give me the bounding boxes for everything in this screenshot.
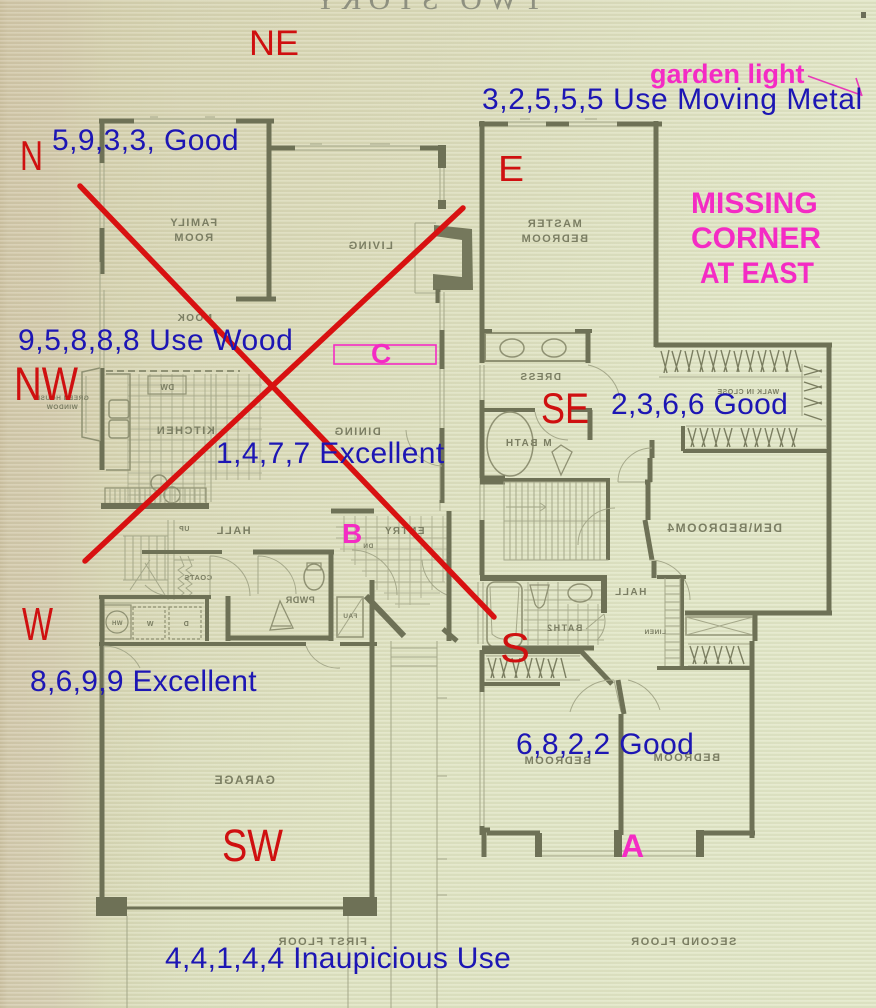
svg-text:UP: UP	[179, 526, 190, 533]
svg-text:WH: WH	[112, 621, 123, 627]
svg-text:FAU: FAU	[343, 613, 358, 620]
svg-text:E: E	[498, 148, 524, 189]
svg-text:BEDROOM: BEDROOM	[520, 233, 588, 245]
svg-text:S: S	[500, 624, 530, 671]
svg-text:NE: NE	[249, 24, 299, 63]
svg-text:CORNER: CORNER	[691, 222, 821, 255]
svg-text:DN: DN	[363, 543, 373, 550]
svg-text:6,8,2,2 Good: 6,8,2,2 Good	[516, 728, 694, 761]
svg-text:PWDR: PWDR	[285, 595, 315, 605]
svg-text:HALL: HALL	[614, 587, 647, 598]
svg-text:2,3,6,6 Good: 2,3,6,6 Good	[611, 388, 788, 421]
svg-text:NW: NW	[14, 357, 79, 410]
svg-text:KITCHEN: KITCHEN	[155, 425, 214, 437]
svg-text:8,6,9,9 Excellent: 8,6,9,9 Excellent	[30, 665, 257, 698]
svg-text:TWO STORY: TWO STORY	[308, 0, 543, 16]
svg-text:W: W	[22, 598, 53, 650]
svg-text:W: W	[146, 621, 153, 628]
svg-text:BATH2: BATH2	[546, 623, 583, 633]
svg-text:N: N	[20, 132, 43, 179]
svg-text:MISSING: MISSING	[691, 187, 818, 220]
svg-text:C: C	[371, 338, 391, 369]
svg-text:B: B	[342, 518, 362, 549]
svg-text:AT EAST: AT EAST	[700, 257, 814, 290]
svg-text:ROOM: ROOM	[173, 232, 213, 244]
svg-text:COATS: COATS	[184, 573, 212, 582]
svg-text:A: A	[621, 828, 644, 864]
svg-text:LIVING: LIVING	[347, 240, 393, 252]
svg-text:4,4,1,4,4 Inaupicious Use: 4,4,1,4,4 Inaupicious Use	[165, 942, 511, 975]
svg-text:SE: SE	[541, 385, 589, 433]
svg-text:5,9,3,3, Good: 5,9,3,3, Good	[52, 124, 239, 157]
svg-text:DRESS: DRESS	[519, 372, 561, 383]
svg-text:1,4,7,7 Excellent: 1,4,7,7 Excellent	[216, 437, 445, 470]
svg-text:garden light: garden light	[650, 59, 805, 89]
svg-text:LINEN: LINEN	[644, 629, 666, 636]
svg-text:M BATH: M BATH	[504, 438, 551, 449]
svg-text:9,5,8,8,8 Use Wood: 9,5,8,8,8 Use Wood	[18, 324, 293, 357]
svg-text:GARAGE: GARAGE	[213, 773, 275, 787]
svg-text:MASTER: MASTER	[526, 218, 581, 230]
svg-text:SW: SW	[222, 820, 283, 871]
svg-text:FAMILY: FAMILY	[169, 217, 217, 229]
svg-text:D: D	[183, 621, 189, 628]
svg-text:SECOND FLOOR: SECOND FLOOR	[630, 936, 737, 948]
svg-text:DEN\BEDROOM4: DEN\BEDROOM4	[666, 521, 782, 535]
svg-text:DW: DW	[160, 383, 174, 392]
svg-text:HALL: HALL	[215, 525, 250, 537]
